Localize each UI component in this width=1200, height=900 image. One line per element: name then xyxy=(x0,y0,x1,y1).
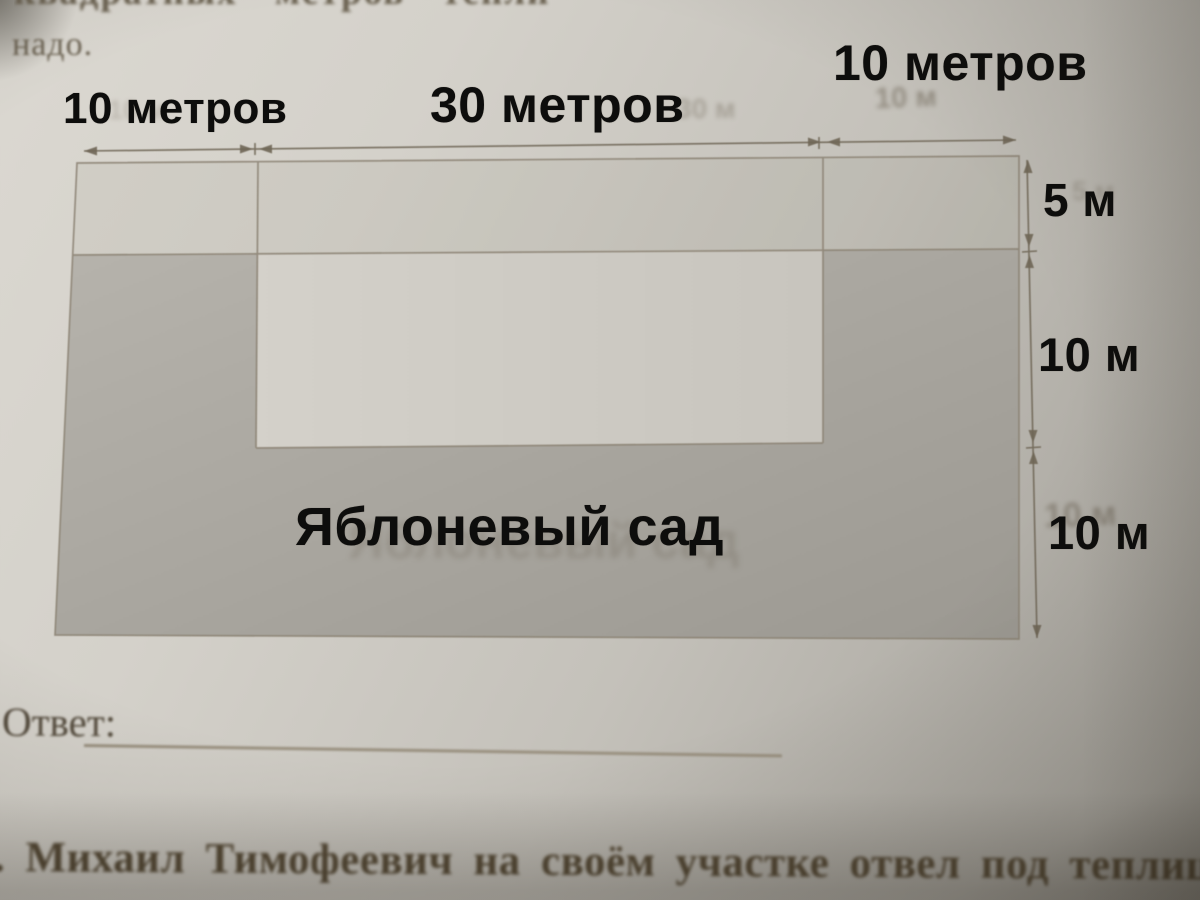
arrow-down-icon xyxy=(1029,430,1038,443)
answer-label: Ответ: xyxy=(2,700,117,746)
top-strip-area xyxy=(73,156,1019,255)
dimension-label-top-left: 10 метров xyxy=(63,87,287,131)
dimension-label-top-middle: 30 метров xyxy=(430,80,684,130)
arrow-right-icon xyxy=(240,145,253,154)
tick xyxy=(1022,251,1037,252)
orchard-title-label: Яблоневый сад xyxy=(295,500,724,554)
arrow-down-icon xyxy=(1025,234,1034,247)
text-line-nado: надо. xyxy=(12,26,93,63)
dimension-label-right-10m-bottom: 10 м xyxy=(1048,509,1150,556)
arrow-up-icon xyxy=(1025,255,1034,268)
dimension-label-right-5m: 5 м xyxy=(1043,177,1117,223)
worksheet-photo: { "page": { "partial_top_line": "квадрат… xyxy=(0,0,1200,900)
arrow-left-icon xyxy=(84,147,97,156)
dimension-label-right-10m-mid: 10 м xyxy=(1038,331,1140,378)
arrow-up-icon xyxy=(1029,451,1038,464)
arrow-left-icon xyxy=(259,145,272,154)
arrow-up-icon xyxy=(1024,160,1033,173)
dimension-label-top-right: 10 метров xyxy=(833,38,1087,88)
arrow-right-icon xyxy=(1003,136,1016,145)
cropped-text-line: квадратных метров тепли xyxy=(14,0,574,17)
right-dimension-line xyxy=(1027,160,1037,638)
garden-plan-diagram xyxy=(0,0,1200,900)
next-task-text: . Михаил Тимофеевич на своём участке отв… xyxy=(0,834,1200,890)
cropped-text-fragment: квадратных метров тепли xyxy=(14,0,550,14)
top-dimension-line xyxy=(84,140,1016,151)
ghost-dim-label: 30 м xyxy=(676,95,736,123)
tick xyxy=(1026,447,1041,448)
inner-notch-area xyxy=(256,250,823,448)
arrow-down-icon xyxy=(1033,625,1042,638)
arrow-left-icon xyxy=(827,138,840,147)
